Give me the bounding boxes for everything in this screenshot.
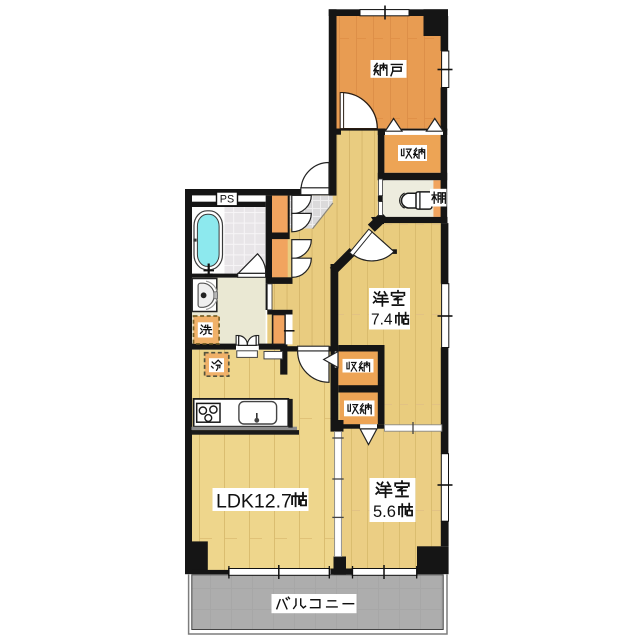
svg-text:LDK12.7: LDK12.7 — [216, 490, 292, 512]
svg-text:PS: PS — [220, 194, 234, 206]
svg-text:7.4: 7.4 — [371, 312, 393, 329]
svg-text:5.6: 5.6 — [373, 503, 396, 521]
